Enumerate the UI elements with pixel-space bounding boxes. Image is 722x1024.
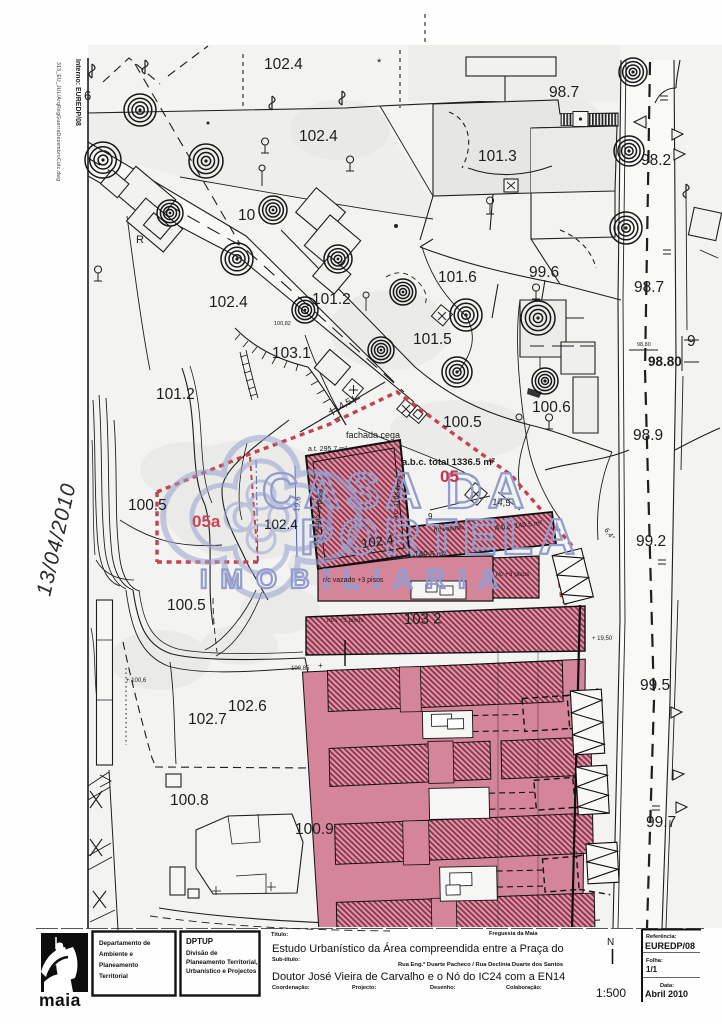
svg-text:14,5: 14,5 (492, 497, 511, 509)
svg-text:98,80: 98,80 (637, 342, 651, 348)
svg-text:a.t. 295,7 m²: a.t. 295,7 m² (308, 446, 348, 453)
svg-text:100,82: 100,82 (274, 321, 291, 327)
svg-text:N: N (607, 937, 614, 948)
svg-text:Territorial: Territorial (99, 973, 128, 980)
svg-text:98.80: 98.80 (648, 354, 682, 369)
svg-text:Coordenação:: Coordenação: (272, 985, 310, 991)
svg-text:6: 6 (84, 88, 91, 103)
svg-text:101.2: 101.2 (312, 291, 351, 308)
svg-text:100.6: 100.6 (532, 399, 571, 416)
svg-text:102.4: 102.4 (299, 128, 338, 145)
svg-text:100.5: 100.5 (128, 497, 167, 514)
svg-text:102.6: 102.6 (228, 698, 267, 715)
svg-text:05a: 05a (192, 512, 221, 531)
svg-text:Estudo Urbanístico da Área com: Estudo Urbanístico da Área compreendida … (272, 942, 564, 955)
svg-text:+: + (318, 661, 323, 670)
svg-text:19,6: 19,6 (292, 495, 303, 512)
svg-text:102.4: 102.4 (264, 517, 298, 532)
svg-text:Doutor José Vieira de Carvalho: Doutor José Vieira de Carvalho e o Nó do… (272, 971, 565, 983)
svg-text:9: 9 (687, 333, 696, 350)
svg-text:101.6: 101.6 (438, 269, 477, 286)
svg-text:EUREDP/08: EUREDP/08 (645, 941, 695, 951)
svg-text:103 2: 103 2 (404, 610, 442, 628)
svg-text:Planeamento: Planeamento (99, 962, 138, 969)
svg-text:Referência:: Referência: (646, 934, 677, 940)
svg-text:10: 10 (238, 207, 256, 224)
svg-text:R: R (136, 234, 144, 246)
svg-text:a.b.c. total 1336.5 m²: a.b.c. total 1336.5 m² (402, 457, 495, 468)
svg-text:1:500: 1:500 (596, 986, 626, 1000)
svg-text:05: 05 (440, 467, 459, 486)
svg-text:Ambiente e: Ambiente e (99, 951, 133, 958)
svg-text:Título:: Título: (271, 932, 288, 938)
svg-text:1/1: 1/1 (646, 965, 658, 974)
svg-text:Interno: EUREDP/08: Interno: EUREDP/08 (74, 59, 81, 126)
svg-text:98.7: 98.7 (549, 84, 579, 101)
svg-text:Urbanístico e Projectos: Urbanístico e Projectos (186, 968, 257, 975)
svg-text:fachada cega: fachada cega (346, 430, 400, 440)
svg-text:+ 19,50: + 19,50 (592, 636, 613, 642)
svg-text:Planeamento Territorial,: Planeamento Territorial, (186, 959, 258, 966)
svg-text:99.5: 99.5 (640, 677, 670, 694)
svg-text:maia: maia (39, 990, 81, 1010)
svg-text:98.2: 98.2 (641, 152, 671, 169)
svg-text:99.2: 99.2 (636, 533, 666, 550)
svg-text:L 149:5 m²: L 149:5 m² (408, 550, 446, 559)
svg-text:100.8: 100.8 (170, 792, 209, 809)
svg-text:98.7: 98.7 (634, 279, 664, 296)
svg-text:Abril 2010: Abril 2010 (645, 989, 688, 999)
svg-text:13/04/2010: 13/04/2010 (32, 481, 80, 598)
svg-text:Colaboração:: Colaboração: (506, 985, 542, 991)
svg-text:103.1: 103.1 (272, 345, 311, 362)
svg-text:101.3: 101.3 (478, 148, 517, 165)
svg-text:9: 9 (428, 512, 433, 521)
svg-text:Divisão de: Divisão de (186, 950, 218, 957)
svg-text:98.9: 98.9 (633, 427, 663, 444)
svg-text:101.5: 101.5 (413, 331, 452, 348)
svg-text:Freguesia da Maia: Freguesia da Maia (489, 931, 538, 937)
svg-text:m/s +3 pisos: m/s +3 pisos (327, 617, 364, 624)
svg-text:Rua Eng.ª Duarte Pacheco / Rua: Rua Eng.ª Duarte Pacheco / Rua Declínia … (398, 961, 563, 968)
svg-text:+ 100,6: + 100,6 (126, 678, 147, 684)
svg-text:Folha:: Folha: (646, 958, 663, 964)
svg-text:99.7: 99.7 (646, 814, 676, 831)
svg-text:Departamento de: Departamento de (99, 940, 151, 947)
svg-text:Desenho:: Desenho: (430, 985, 456, 991)
svg-text:102.4: 102.4 (209, 294, 248, 311)
svg-text:100.5: 100.5 (443, 414, 482, 431)
svg-text:100,85: 100,85 (291, 666, 310, 672)
svg-text:100.5: 100.5 (167, 597, 206, 614)
svg-text:r/c +3 pisos: r/c +3 pisos (496, 571, 530, 578)
svg-text:102.4: 102.4 (264, 56, 303, 73)
svg-text:Projecto:: Projecto: (352, 985, 376, 991)
svg-text:Sub-título:: Sub-título: (272, 957, 300, 963)
svg-text:99.6: 99.6 (529, 264, 559, 281)
svg-text:*: * (377, 57, 382, 69)
svg-text:100.9: 100.9 (295, 821, 334, 838)
svg-text:101.2: 101.2 (156, 386, 195, 403)
svg-text:313_EU_JUL/ArqRegGuerraDezembr: 313_EU_JUL/ArqRegGuerraDezembroCutc.dwg (55, 62, 61, 181)
svg-text:r/c vazado +3 pisos: r/c vazado +3 pisos (323, 577, 384, 584)
svg-text:102.7: 102.7 (188, 711, 227, 728)
svg-text:DPTUP: DPTUP (186, 937, 214, 946)
